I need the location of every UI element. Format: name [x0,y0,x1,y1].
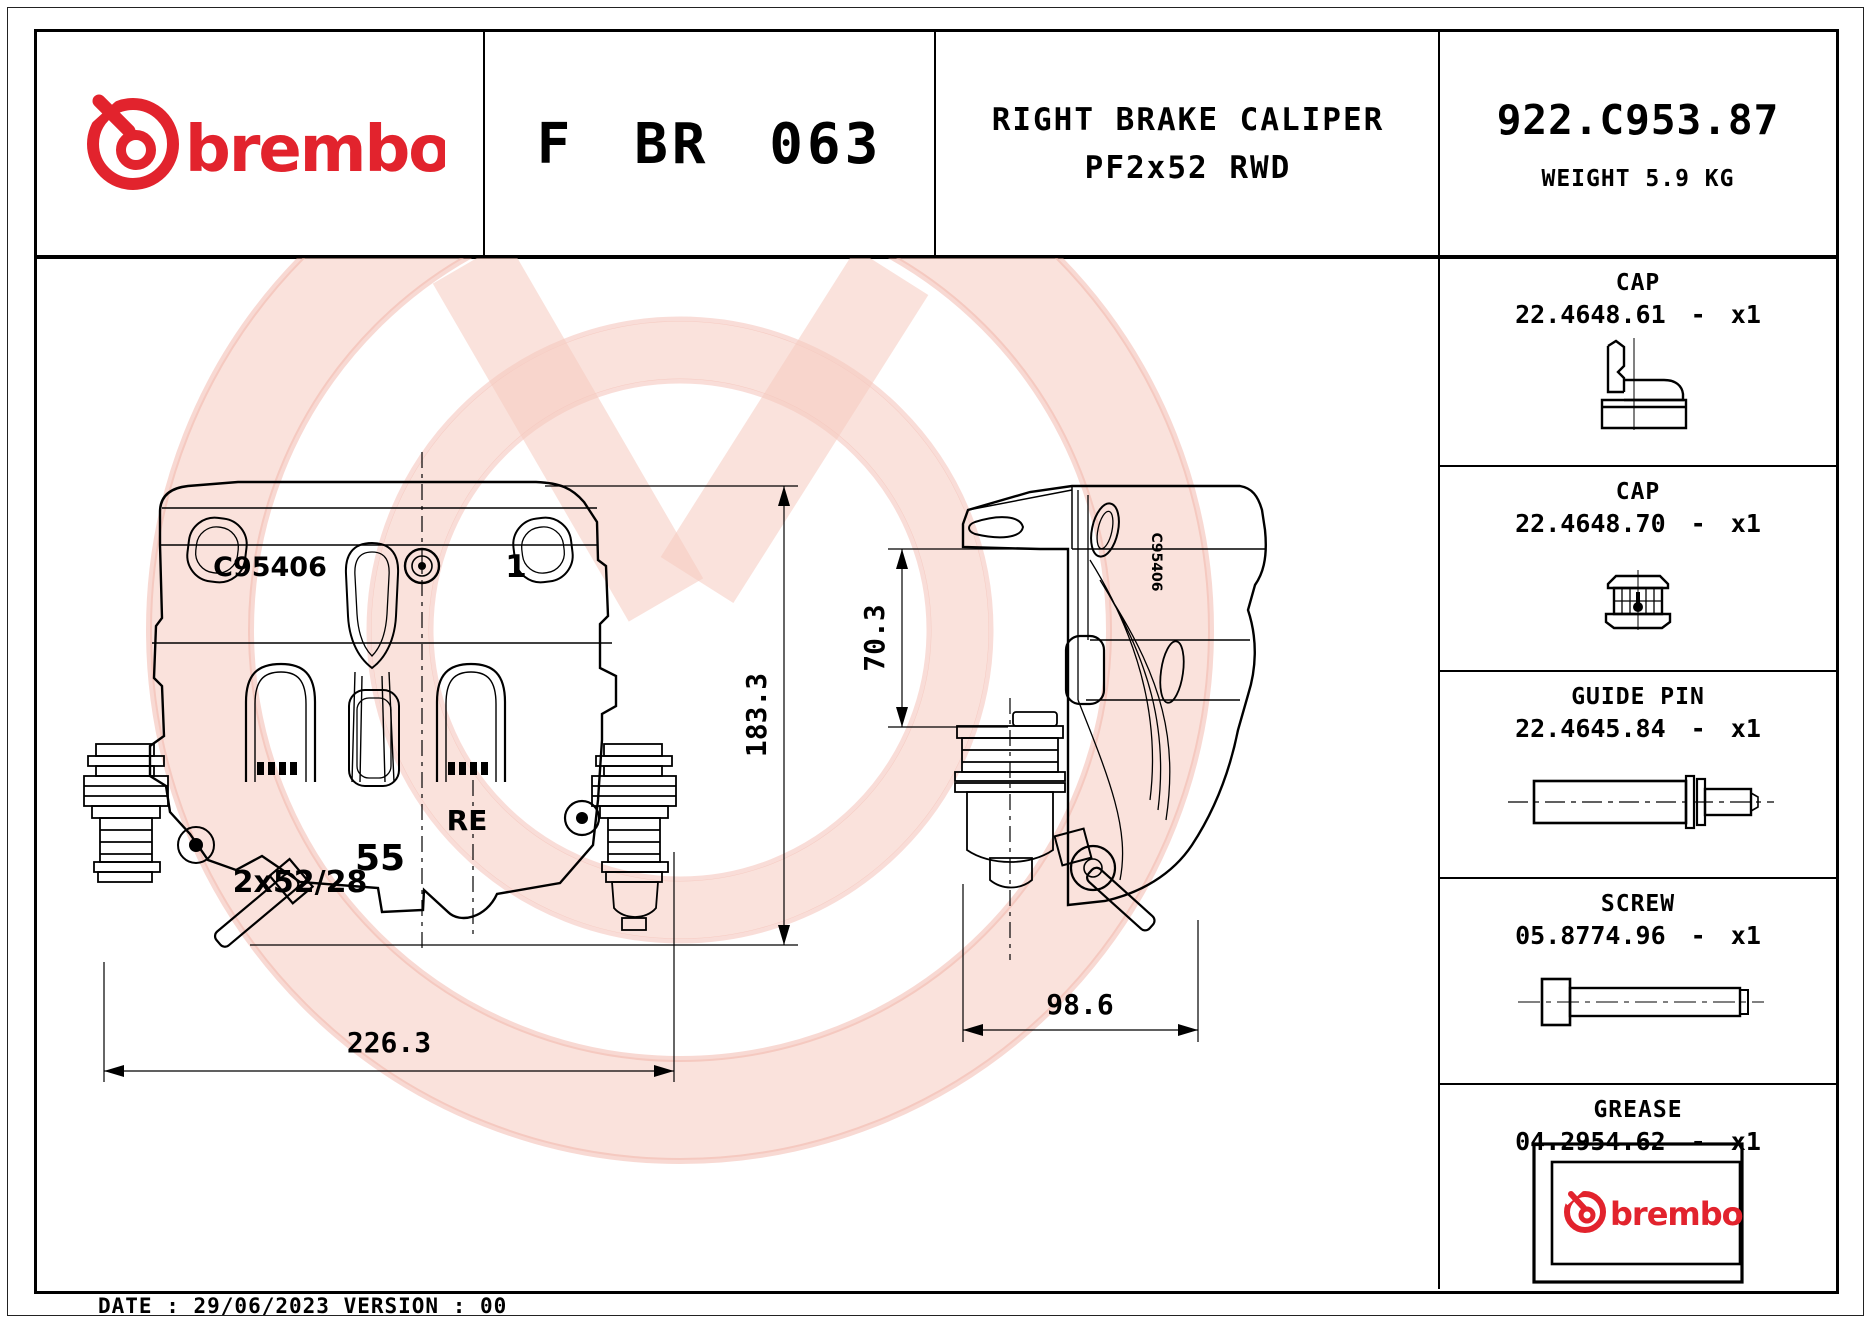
part-number: 922.C953.87 [1497,96,1780,144]
depth-dimension: 98.6 [1046,988,1113,1021]
page-title-line2: PF2x52 RWD [1085,144,1292,192]
brand-cell: brembo [37,32,483,256]
brand-wordmark: brembo [185,113,445,187]
cap-angle-icon [1572,336,1702,432]
part-label: GREASE [1440,1097,1836,1123]
part-label: CAP [1440,479,1836,505]
grease-pack-icon: brembo [1530,1140,1746,1286]
product-code: F BR 063 [537,112,883,177]
pad-serrations [257,762,488,775]
part-label: GUIDE PIN [1440,684,1836,710]
part-label: CAP [1440,270,1836,296]
grease-brand-wordmark: brembo [1610,1195,1743,1233]
left-bleed-screw [84,744,168,882]
part-code: 05.8774.96 - x1 [1440,921,1836,950]
front-piston-mark: 2x52/28 [233,865,368,900]
weight-label: WEIGHT 5.9 KG [1541,166,1734,192]
product-code-cell: F BR 063 [485,32,934,256]
brembo-logo: brembo [75,85,445,203]
mount-dimension: 70.3 [858,604,891,671]
part-label: SCREW [1440,891,1836,917]
part-cell-cap-2: CAP 22.4648.70 - x1 [1440,467,1836,670]
footer-date-version: DATE : 29/06/2023 VERSION : 00 [98,1294,507,1318]
height-dimension: 183.3 [740,673,773,757]
part-code: 22.4648.61 - x1 [1440,300,1836,329]
title-cell: RIGHT BRAKE CALIPER PF2x52 RWD [936,32,1440,256]
front-side-mark: RE [447,804,488,837]
grease-brand-logo: brembo [1559,1179,1742,1233]
width-dimension: 226.3 [347,1026,431,1059]
front-casting-code: C95406 [213,552,327,583]
side-casting-code: C95406 [1148,533,1164,592]
cap-dome-icon [1600,570,1676,630]
front-cavity-mark: 1 [505,549,527,585]
datasheet-page: brembo F BR 063 RIGHT BRAKE CALIPER PF2x… [0,0,1871,1323]
part-code: 22.4645.84 - x1 [1440,714,1836,743]
page-title-line1: RIGHT BRAKE CALIPER [992,96,1385,144]
part-code: 22.4648.70 - x1 [1440,509,1836,538]
part-number-cell: 922.C953.87 WEIGHT 5.9 KG [1440,32,1836,256]
screw-icon [1516,970,1766,1034]
technical-drawing: C95406 1 RE 55 2x52/28 C95406 226.3 183.… [37,258,1438,1289]
guide-pin-icon [1506,772,1776,832]
brembo-watermark [149,258,1211,1161]
